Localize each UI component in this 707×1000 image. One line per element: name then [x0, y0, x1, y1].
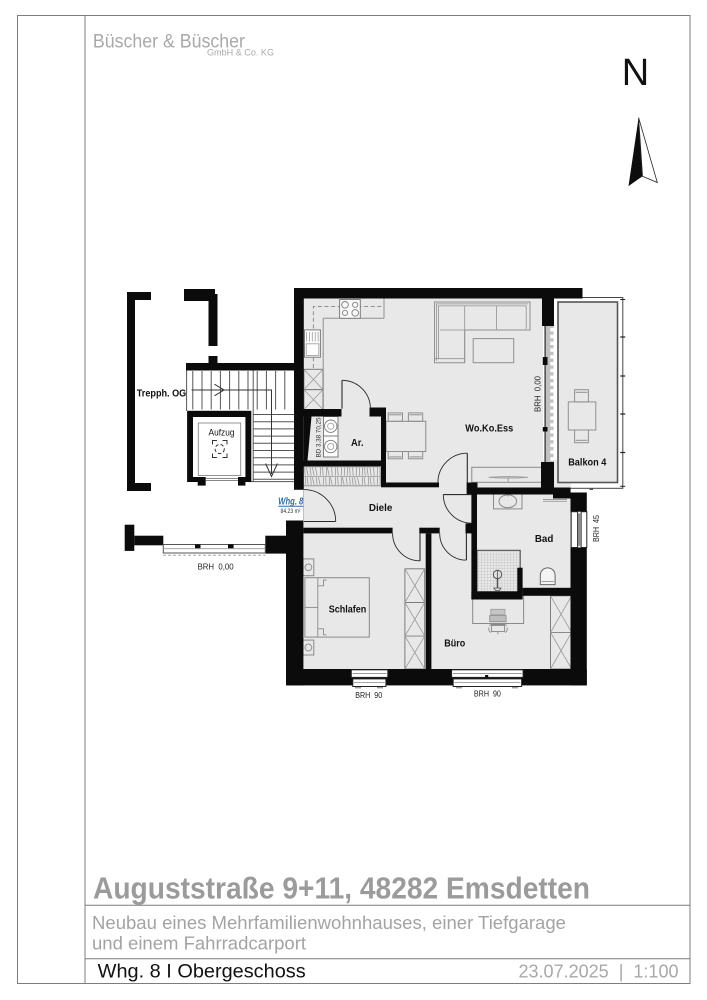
svg-text:Neubau eines Mehrfamilienwohnh: Neubau eines Mehrfamilienwohnhauses, ein… [92, 913, 566, 933]
svg-text:N: N [622, 52, 649, 94]
svg-text:84.23 m²: 84.23 m² [281, 508, 301, 515]
svg-text:Bad: Bad [535, 533, 554, 545]
svg-text:Auguststraße 9+11, 48282 Emsde: Auguststraße 9+11, 48282 Emsdetten [93, 871, 590, 906]
svg-text:BRH 45: BRH 45 [592, 515, 601, 542]
svg-text:BRH 0,00: BRH 0,00 [198, 563, 235, 572]
svg-text:Büro: Büro [444, 638, 465, 650]
svg-text:und einem Fahrradcarport: und einem Fahrradcarport [92, 934, 306, 954]
svg-text:BD 3,38 70,25: BD 3,38 70,25 [317, 417, 323, 458]
svg-text:Schlafen: Schlafen [329, 603, 367, 615]
svg-text:Diele: Diele [369, 502, 393, 514]
svg-text:Trepph. OG: Trepph. OG [137, 388, 187, 400]
svg-text:BRH 90: BRH 90 [474, 690, 501, 699]
svg-text:BRH 90: BRH 90 [355, 691, 382, 700]
svg-text:Ar.: Ar. [351, 437, 364, 449]
svg-text:BRH 0,00: BRH 0,00 [534, 375, 543, 412]
svg-text:Whg. 8 I Obergeschoss: Whg. 8 I Obergeschoss [98, 962, 306, 983]
svg-text:Wo.Ko.Ess: Wo.Ko.Ess [465, 422, 513, 434]
svg-text:Aufzug: Aufzug [209, 427, 235, 438]
svg-text:23.07.2025 | 1:100: 23.07.2025 | 1:100 [519, 962, 679, 982]
svg-text:Balkon 4: Balkon 4 [568, 456, 606, 468]
svg-text:GmbH & Co. KG: GmbH & Co. KG [207, 48, 274, 58]
